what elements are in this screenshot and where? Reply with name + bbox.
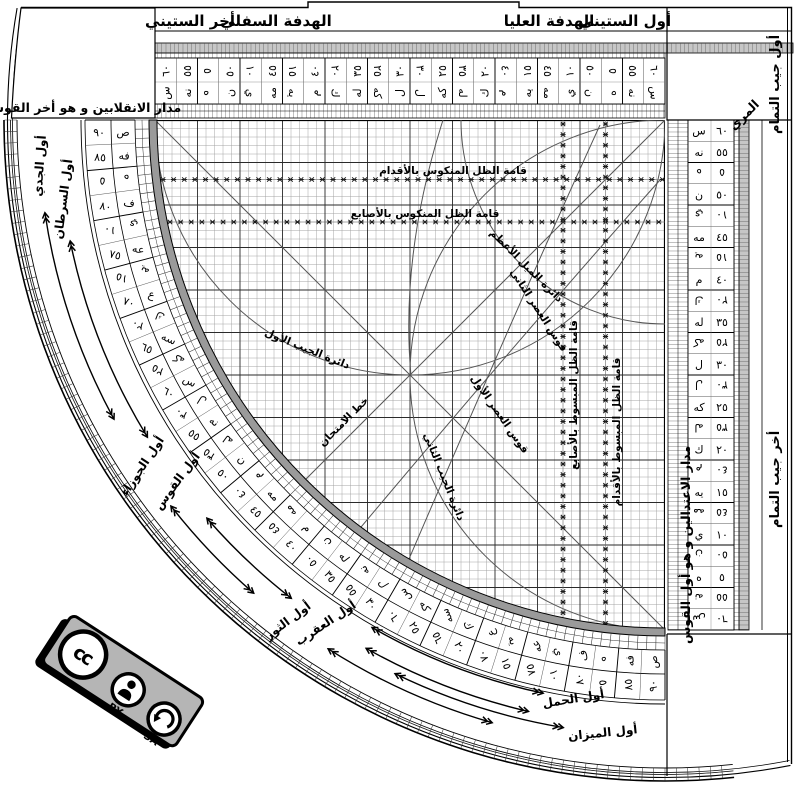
arc-scale-numeral: ٥٥ [342,582,359,599]
flat-shadow-digits-label: قامة الظل المبسوط بالأصابع [567,320,580,470]
arc-scale-numeral: ٥٠ [215,466,232,484]
top-scale-letter: س [647,86,660,99]
top-scale-numeral: ٣٥ [456,65,469,77]
right-scale-letter: كه [693,401,705,414]
arc-scale-letter: ل [195,393,209,408]
top-scale-letter: مه [266,87,279,99]
right-scale-letter: ن [695,188,703,201]
top-scale-letter: ك [478,88,491,97]
right-scale-numeral: ٤٠ [716,464,728,477]
arc-scale-letter: سه [159,330,178,348]
arc-scale-numeral: ٤٠ [231,484,248,502]
top-scale-numeral: ١٠ [563,65,576,77]
right-scale-numeral: ٥ [719,571,725,584]
right-scale-numeral: ١٥ [716,251,728,264]
arc-scale-numeral: ٤٥ [265,520,283,538]
sine-quadrant-diagram: ٩٠ص٨٥فه٥ه٨٠ف١٠ي٧٥عه١٥يه٧٠ع٢٠ك٦٥سه٢٥كه٦٠س… [0,0,794,794]
top-scale-letter: كه [436,87,449,99]
top-scale-numeral: ١٥ [521,65,534,77]
right-scale-letter: نه [695,591,704,604]
right-scale-letter: كه [693,336,705,349]
flat-shadow-feet-label: قامة الظل المبسوط بالأقدام [610,357,623,506]
arc-scale-numeral: ٢٥ [406,620,423,636]
arc-scale-numeral: ٥٥ [186,426,203,443]
arc-scale-letter: ن [235,452,249,467]
arc-scale-numeral: ١٠ [547,668,562,682]
top-scale-numeral: ٤٥ [266,65,279,77]
top-scale-letter: ك [329,88,342,97]
arc-scale-numeral: ٧٥ [108,247,123,262]
right-scale-letter: له [694,421,703,434]
arc-scale-letter: م [251,470,265,484]
zodiac-label: أول الجوزاء [117,433,168,499]
right-scale-numeral: ٦٠ [716,612,728,625]
right-scale-letter: م [696,464,703,477]
top-scale-letter: ن [584,89,597,97]
arc-scale-letter: مه [282,502,300,520]
right-scale-letter: يه [695,486,704,499]
right-scale-numeral: ١٥ [716,486,728,499]
cc-by-sa-badge: cc BY SA [30,611,205,757]
top-scale-numeral: ٥٠ [223,65,236,77]
arc-scale-numeral: ٨٠ [572,672,587,686]
right-scale-numeral: ٥ [719,166,725,179]
top-scale-letter: ه [606,90,619,96]
zodiac-label: أول السرطان [50,158,76,240]
arc-scale-numeral: ٧٠ [476,648,492,663]
arc-scale-numeral: ٦٠ [160,384,177,401]
arrow-arc [171,506,254,593]
top-scale-letter: س [160,86,173,99]
arc-scale-letter: سه [438,606,456,625]
arc-scale-letter: م [300,521,314,535]
top-scale-numeral: ٢٠ [329,65,342,77]
cosine-labels: أول جيب التمام أخر جيب التمام [766,35,783,528]
arc-scale-numeral: ١٠ [103,222,117,237]
arc-scale-numeral: ٩٠ [93,126,105,139]
right-scale-numeral: ١٠ [716,209,728,222]
equinox-orbit-label: مدار الاعتدالين و هو أول القوس [677,446,693,644]
right-scale-numeral: ٤٠ [716,273,728,286]
arc-scale-numeral: ٩٠ [647,680,660,692]
top-scale-letter: له [351,88,364,97]
right-scale-numeral: ٥٠ [716,188,728,201]
right-scale-letter: ل [695,358,703,371]
zodiac-label: أول القوس [151,449,204,513]
right-scale-letter: ك [694,443,703,456]
top-scale-numeral: ٣٠ [393,65,406,77]
right-scale-numeral: ٢٥ [716,336,728,349]
arc-scale-numeral: ٦٥ [139,340,155,357]
arc-scale-numeral: ٢٠ [130,316,146,332]
right-scale-letter: ه [696,166,702,179]
zodiac-label: أول الميزان [567,721,638,744]
right-scale-numeral: ١٠ [716,528,728,541]
top-scale-letter: ه [201,90,214,96]
reversed-shadow-digits-label: قامة الظل المنكوس بالأصابع [351,207,500,220]
top-scale-letter: م [308,90,321,97]
arc-scale-numeral: ١٥ [114,270,129,286]
right-scale-letter: مه [693,506,705,519]
top-scale-letter: يه [286,89,299,98]
first-sixty-label: أول الستيني [579,11,671,30]
header-labels: أخر الستيني الهدفة السفلي الهدفة العليا … [145,11,671,30]
lower-sight-label: الهدفة السفلي [220,12,332,30]
right-scale-numeral: ٥٥ [716,591,728,604]
arc-scale-letter: ك [153,308,166,323]
top-scale-numeral: ٥٥ [626,65,639,77]
top-scale-numeral: ٢٥ [371,65,384,77]
top-scale-numeral: ١٥ [286,65,299,77]
arc-scale-letter: ن [318,535,333,549]
arc-scale-letter: فه [118,149,130,163]
arc-scale-letter: عه [131,241,146,257]
right-scale-letter: ه [696,571,702,584]
right-scale-numeral: ٥٥ [716,146,728,159]
right-scale-letter: س [692,125,705,138]
top-scale-numeral: ٣٠ [414,65,427,77]
zodiac-label: أول الجدي [29,135,49,197]
top-scale-letter: مه [541,87,554,99]
arc-scale-letter: كه [417,598,434,614]
arc-scale-letter: كه [171,351,187,368]
top-scale-numeral: ٤٠ [499,65,512,77]
arc-scale-numeral: ٣٠ [362,596,379,613]
top-scale-numeral: ٦٠ [160,65,173,77]
arc-scale-numeral: ٧٠ [121,294,136,310]
top-scale-letter: نه [181,89,194,98]
top-scale-letter: ن [223,89,236,97]
top-scale-numeral: ٥٥ [181,65,194,77]
arc-scale-numeral: ٨٥ [94,151,107,165]
right-scale-numeral: ٣٠ [716,358,728,371]
right-scale-letter: ي [695,528,704,541]
arc-scale-letter: ي [552,646,566,657]
right-scale-letter: س [692,612,705,625]
top-scale-numeral: ٤٠ [308,65,321,77]
arc-scale-letter: ه [599,655,613,662]
arc-scale-letter: ه [123,172,130,186]
top-scale-numeral: ٦٠ [647,65,660,77]
right-scale-letter: م [696,273,703,286]
arc-scale-numeral: ٤٥ [247,503,265,521]
top-gray-band-ticks [155,43,793,53]
top-scale-letter: م [499,90,512,97]
arc-scale-numeral: ٣٥ [200,446,217,464]
top-scale-letter: ل [393,89,406,97]
top-scale-numeral: ٥٠ [584,65,597,77]
arc-scale-letter: ي [128,218,139,232]
arrow-arc [328,649,492,723]
arc-scale-letter: نه [356,563,372,578]
arc-scale-letter: ع [146,287,157,302]
arc-scale-letter: مه [264,486,282,504]
top-scale-letter: نه [626,89,639,98]
arc-scale-numeral: ٦٥ [429,630,446,646]
arc-scale-letter: ف [576,649,591,662]
cosine-start-label: أول جيب التمام [766,35,783,134]
right-scale-numeral: ٢٠ [716,294,728,307]
right-scale-letter: ل [695,379,703,392]
right-scale-numeral: ٥٠ [716,549,728,562]
arc-scale-numeral: ٥ [99,174,106,188]
arc-scale-numeral: ٦٠ [385,608,402,625]
right-scale-letter: ن [695,549,703,562]
arc-scale-letter: س [181,372,199,390]
top-scale-numeral: ٢٥ [436,65,449,77]
zodiac-label: أول الحمل [541,686,605,712]
arc-scale-letter: نه [207,414,222,430]
right-scale-letter: له [694,316,703,329]
top-scale-letter: كه [371,87,384,99]
right-scale-numeral: ٢٥ [716,401,728,414]
right-scale-numeral: ٣٥ [716,421,728,434]
top-scale-letter: ي [563,89,576,98]
arc-scale-numeral: ٥٠ [302,552,320,569]
top-scale-numeral: ٣٥ [351,65,364,77]
top-tick-row [155,53,665,58]
top-scale-numeral: ٥ [606,68,619,74]
arc-scale-letter: له [221,432,236,448]
arc-scale-numeral: ٣٥ [321,568,339,585]
right-scale-letter: مه [693,231,705,244]
arc-scale-letter: له [336,550,352,565]
top-scale-letter: ي [244,89,257,98]
quadrant-svg: ٩٠ص٨٥فه٥ه٨٠ف١٠ي٧٥عه١٥يه٧٠ع٢٠ك٦٥سه٢٥كه٦٠س… [0,0,794,794]
top-scale-letter: يه [521,89,534,98]
arc-scale-numeral: ٢٥ [149,361,165,378]
top-scale-numeral: ١٠ [244,65,257,77]
arc-scale-numeral: ٤٠ [283,537,301,554]
right-scale-letter: ي [695,209,704,222]
arc-scale-letter: ص [647,655,660,669]
right-scale-numeral: ٢٠ [716,443,728,456]
arc-scale-numeral: ٢٠ [451,640,467,656]
right-scale-letter: يه [695,251,704,264]
reversed-shadow-feet-label: قامة الظل المنكوس بالأقدام [379,164,527,177]
arrow-arc [45,213,114,420]
right-scale-letter: ك [694,294,703,307]
right-tick-row [734,120,739,630]
right-scale-numeral: ٣٠ [716,379,728,392]
arc-scale-letter: عه [529,639,545,654]
top-scale-numeral: ٢٠ [478,65,491,77]
right-scale-numeral: ٤٥ [716,231,728,244]
right-gray-band-ticks [739,120,749,630]
arc-scale-letter: فه [623,655,637,667]
arc-scale-numeral: ٣٠ [173,405,190,422]
arc-scale-numeral: ٨٥ [622,678,636,691]
right-scale-numeral: ٣٥ [716,316,728,329]
top-scale-letter: له [456,88,469,97]
top-scale-numeral: ٤٥ [541,65,554,77]
solstice-orbit-label: مدار الانقلابين و هو أخر القوس [0,99,181,115]
cosine-end-label: أخر جيب التمام [766,431,783,528]
arc-scale-letter: يه [139,264,151,279]
arc-scale-numeral: ٥ [596,679,610,686]
top-scale-numeral: ٥ [201,68,214,74]
right-scale-numeral: ٦٠ [716,125,728,138]
right-scale-numeral: ٤٥ [716,506,728,519]
arc-scale-letter: ل [376,577,391,591]
arc-scale-letter: ع [484,627,499,638]
arc-scale-letter: ف [123,196,136,211]
arc-scale-letter: يه [505,634,520,646]
arc-scale-letter: ص [116,126,130,139]
arc-scale-numeral: ٧٥ [523,662,538,677]
arc-scale-numeral: ٨٠ [99,199,113,214]
right-scale-letter: نه [695,146,704,159]
arc-scale-numeral: ١٥ [498,656,514,671]
arc-scale-letter: س [396,586,414,604]
top-scale-letter: ل [414,89,427,97]
arc-scale-letter: ك [460,619,475,632]
